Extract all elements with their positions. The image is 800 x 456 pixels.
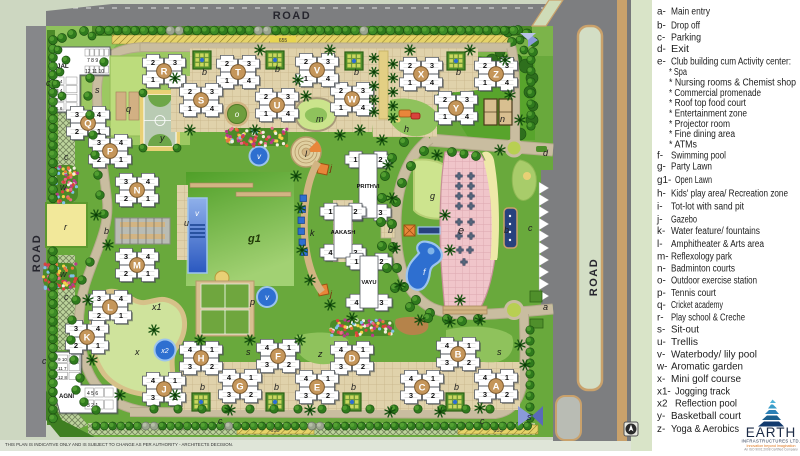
svg-text:2: 2 [97, 311, 101, 320]
svg-text:3: 3 [74, 324, 78, 333]
svg-text:T: T [235, 67, 241, 78]
svg-text:Trellis: Trellis [671, 337, 698, 348]
svg-text:3: 3 [465, 95, 469, 104]
svg-text:1: 1 [225, 76, 229, 85]
svg-text:3: 3 [304, 391, 308, 400]
svg-text:b: b [504, 225, 509, 235]
svg-text:c: c [528, 223, 533, 233]
svg-text:r-: r- [657, 312, 664, 323]
svg-text:c: c [218, 416, 223, 426]
svg-text:c: c [46, 78, 51, 88]
svg-text:J: J [161, 384, 166, 395]
svg-text:X: X [418, 69, 425, 80]
svg-text:G: G [236, 381, 243, 392]
svg-text:2: 2 [225, 59, 229, 68]
svg-text:c: c [42, 356, 47, 366]
svg-text:Amphitheater & Arts area: Amphitheater & Arts area [671, 239, 764, 250]
svg-text:p: p [249, 297, 255, 307]
svg-text:Z: Z [493, 69, 499, 80]
svg-text:1: 1 [408, 78, 412, 87]
svg-text:F: F [275, 351, 281, 362]
svg-text:3: 3 [227, 390, 231, 399]
svg-text:1: 1 [96, 341, 100, 350]
svg-text:P: P [107, 146, 114, 157]
svg-text:An ISO 9001:2008 Certified Com: An ISO 9001:2008 Certified Company [744, 447, 798, 451]
svg-text:b: b [454, 382, 459, 392]
svg-text:1: 1 [146, 269, 150, 278]
svg-text:Waterbody/ lily pool: Waterbody/ lily pool [671, 349, 757, 360]
svg-text:1: 1 [249, 373, 253, 382]
svg-text:2: 2 [210, 362, 214, 371]
svg-text:2: 2 [339, 86, 343, 95]
svg-text:1: 1 [431, 374, 435, 383]
svg-text:w: w [60, 182, 67, 192]
svg-text:3: 3 [247, 59, 251, 68]
svg-text:2: 2 [249, 390, 253, 399]
svg-text:m-: m- [657, 252, 669, 263]
svg-text:3: 3 [188, 362, 192, 371]
svg-text:PRITHVI: PRITHVI [357, 184, 380, 190]
svg-text:1: 1 [264, 109, 268, 118]
svg-text:Main entry: Main entry [671, 7, 710, 18]
svg-text:b: b [456, 67, 461, 77]
svg-text:i-: i- [657, 201, 662, 212]
svg-text:2: 2 [467, 358, 471, 367]
svg-text:AAKASH: AAKASH [331, 230, 356, 236]
svg-text:Mini golf course: Mini golf course [671, 374, 742, 385]
svg-text:Q: Q [84, 118, 91, 129]
svg-text:Parking: Parking [671, 33, 701, 44]
svg-text:V: V [314, 65, 321, 76]
svg-text:Jogging track: Jogging track [675, 387, 730, 398]
svg-text:o: o [235, 110, 240, 119]
svg-text:Aromatic garden: Aromatic garden [671, 362, 743, 373]
svg-text:Drop off: Drop off [671, 21, 700, 32]
svg-text:Outdoor exercise station: Outdoor exercise station [671, 276, 757, 287]
svg-text:C: C [419, 382, 426, 393]
svg-text:s: s [527, 412, 532, 422]
svg-text:1: 1 [354, 257, 358, 266]
svg-text:m: m [316, 114, 324, 124]
svg-text:Club building cum Activity cen: Club building cum Activity center: [671, 57, 791, 68]
svg-text:3: 3 [97, 294, 101, 303]
svg-text:W: W [348, 94, 357, 105]
svg-text:R: R [161, 66, 168, 77]
svg-text:3: 3 [210, 87, 214, 96]
svg-text:c: c [64, 292, 69, 302]
svg-text:h-: h- [657, 188, 666, 199]
svg-text:q-: q- [657, 300, 666, 311]
svg-text:2: 2 [505, 390, 509, 399]
svg-text:x: x [134, 347, 140, 357]
svg-text:p-: p- [657, 288, 666, 299]
svg-text:1: 1 [353, 155, 357, 164]
svg-text:* Fine dining area: * Fine dining area [669, 129, 735, 140]
svg-text:3: 3 [124, 177, 128, 186]
svg-text:H: H [198, 353, 205, 364]
svg-text:b: b [202, 67, 207, 77]
svg-text:1: 1 [287, 343, 291, 352]
svg-text:o-: o- [657, 276, 666, 287]
svg-text:3: 3 [339, 362, 343, 371]
svg-text:g-: g- [657, 162, 666, 173]
svg-text:w-: w- [656, 362, 667, 373]
svg-text:3: 3 [151, 393, 155, 402]
svg-text:2: 2 [287, 360, 291, 369]
svg-text:x2: x2 [160, 348, 169, 355]
svg-text:3: 3 [445, 358, 449, 367]
svg-text:2: 2 [75, 127, 79, 136]
svg-text:L: L [107, 302, 113, 313]
svg-text:Kids' play area/ Recreation zo: Kids' play area/ Recreation zone [671, 188, 788, 199]
svg-text:N: N [134, 185, 141, 196]
svg-text:* Spa: * Spa [669, 67, 687, 78]
svg-text:f-: f- [657, 151, 663, 162]
svg-text:z-: z- [657, 424, 665, 435]
svg-text:a-: a- [657, 7, 666, 18]
svg-text:Cricket academy: Cricket academy [671, 300, 723, 311]
svg-text:s: s [95, 85, 100, 95]
svg-text:b: b [275, 64, 280, 74]
svg-text:a: a [543, 302, 548, 312]
svg-text:s-: s- [657, 325, 665, 336]
svg-text:3: 3 [379, 298, 383, 307]
svg-text:1: 1 [483, 78, 487, 87]
svg-text:c: c [64, 152, 69, 162]
svg-text:Open Lawn: Open Lawn [675, 175, 712, 186]
svg-text:3: 3 [430, 61, 434, 70]
svg-text:j-: j- [656, 214, 662, 225]
svg-text:1: 1 [119, 155, 123, 164]
svg-text:1: 1 [188, 104, 192, 113]
svg-text:1: 1 [119, 311, 123, 320]
svg-text:1: 1 [304, 74, 308, 83]
svg-text:2: 2 [264, 92, 268, 101]
svg-text:3: 3 [124, 252, 128, 261]
svg-text:2: 2 [124, 194, 128, 203]
svg-text:c: c [480, 416, 485, 426]
svg-text:v-: v- [657, 349, 665, 360]
svg-text:9 10: 9 10 [58, 357, 67, 362]
svg-text:ROAD: ROAD [588, 258, 600, 296]
svg-text:w: w [60, 269, 67, 279]
svg-text:2: 2 [188, 87, 192, 96]
svg-text:* ATMs: * ATMs [669, 140, 697, 151]
svg-text:2: 2 [304, 57, 308, 66]
svg-text:Basketball court: Basketball court [671, 411, 741, 422]
svg-text:b: b [274, 382, 279, 392]
svg-text:1: 1 [326, 374, 330, 383]
svg-text:1: 1 [146, 194, 150, 203]
svg-text:U: U [274, 100, 281, 111]
svg-text:K: K [84, 332, 91, 343]
svg-text:z: z [317, 349, 323, 359]
svg-text:ROAD: ROAD [273, 10, 311, 22]
svg-text:Badminton courts: Badminton courts [671, 264, 735, 275]
svg-text:3: 3 [378, 208, 382, 217]
svg-text:Reflection pool: Reflection pool [675, 399, 737, 410]
svg-text:q: q [126, 104, 131, 114]
svg-text:e-: e- [657, 57, 666, 68]
svg-text:A: A [493, 381, 500, 392]
svg-text:n: n [500, 114, 505, 124]
svg-text:2: 2 [124, 269, 128, 278]
svg-text:2: 2 [408, 61, 412, 70]
svg-text:AGNI: AGNI [59, 394, 74, 400]
svg-text:3: 3 [286, 92, 290, 101]
svg-text:7 8 9: 7 8 9 [87, 58, 98, 64]
svg-text:u: u [184, 218, 189, 228]
svg-text:3: 3 [97, 138, 101, 147]
svg-text:s: s [497, 347, 502, 357]
svg-text:1: 1 [467, 341, 471, 350]
svg-text:x2: x2 [657, 399, 667, 410]
svg-text:h: h [404, 124, 409, 134]
svg-text:1: 1 [151, 75, 155, 84]
svg-text:2: 2 [379, 257, 383, 266]
svg-text:Tot-lot with sand pit: Tot-lot with sand pit [671, 201, 744, 212]
svg-text:2: 2 [151, 58, 155, 67]
svg-text:Water feature/ fountains: Water feature/ fountains [671, 226, 760, 237]
svg-text:e: e [458, 225, 464, 237]
svg-text:E: E [314, 382, 320, 393]
svg-text:Party Lawn: Party Lawn [671, 162, 712, 173]
svg-text:2: 2 [483, 61, 487, 70]
svg-text:c-: c- [657, 33, 665, 44]
svg-text:x1-: x1- [657, 387, 671, 398]
svg-text:3: 3 [75, 110, 79, 119]
svg-text:Y: Y [453, 103, 460, 114]
svg-text:Swimming pool: Swimming pool [671, 151, 726, 162]
svg-text:THIS PLAN IS INDICATIVE ONLY A: THIS PLAN IS INDICATIVE ONLY AND IS SUBJ… [5, 442, 233, 447]
svg-text:D: D [349, 353, 356, 364]
svg-text:3: 3 [265, 360, 269, 369]
svg-text:g: g [430, 191, 435, 201]
svg-text:l-: l- [657, 239, 662, 250]
svg-text:Exit: Exit [671, 44, 689, 55]
svg-text:VAYU: VAYU [361, 280, 376, 286]
svg-text:y-: y- [657, 411, 665, 422]
svg-text:INFRASTRUCTURES LTD.: INFRASTRUCTURES LTD. [741, 439, 800, 444]
svg-text:3: 3 [483, 390, 487, 399]
svg-text:1: 1 [505, 373, 509, 382]
svg-text:b-: b- [657, 21, 666, 32]
svg-text:b: b [351, 382, 356, 392]
svg-text:1: 1 [361, 345, 365, 354]
svg-text:2: 2 [361, 362, 365, 371]
svg-text:1: 1 [210, 345, 214, 354]
svg-text:Play school & Creche: Play school & Creche [671, 312, 745, 323]
svg-text:d-: d- [657, 44, 666, 55]
svg-text:k-: k- [657, 226, 665, 237]
svg-text:2: 2 [353, 207, 357, 216]
svg-text:u-: u- [657, 337, 666, 348]
svg-text:11 7: 11 7 [58, 366, 67, 371]
svg-text:b: b [354, 67, 359, 77]
svg-text:2: 2 [378, 155, 382, 164]
svg-text:b: b [104, 226, 109, 236]
svg-text:s: s [246, 347, 251, 357]
svg-text:y: y [159, 133, 165, 143]
svg-text:k: k [310, 228, 315, 238]
svg-text:g1-: g1- [657, 175, 671, 186]
svg-text:b: b [200, 382, 205, 392]
svg-text:12 8: 12 8 [58, 375, 67, 380]
svg-text:3: 3 [409, 391, 413, 400]
svg-text:Sit-out: Sit-out [671, 325, 699, 336]
svg-text:x1: x1 [151, 302, 162, 312]
svg-text:2: 2 [431, 391, 435, 400]
svg-text:1: 1 [443, 112, 447, 121]
svg-text:3: 3 [173, 58, 177, 67]
svg-text:x-: x- [657, 374, 665, 385]
svg-text:2: 2 [326, 391, 330, 400]
svg-text:1: 1 [339, 103, 343, 112]
svg-text:Reflexology park: Reflexology park [671, 252, 732, 263]
svg-text:Tennis court: Tennis court [671, 288, 716, 299]
svg-text:1: 1 [328, 207, 332, 216]
svg-text:M: M [133, 260, 141, 271]
svg-text:n-: n- [657, 264, 666, 275]
svg-text:B: B [455, 349, 462, 360]
svg-text:* Roof top food court: * Roof top food court [669, 98, 746, 109]
svg-text:3: 3 [361, 86, 365, 95]
svg-text:3: 3 [326, 57, 330, 66]
svg-text:Gazebo: Gazebo [671, 214, 697, 225]
svg-text:Yoga & Aerobics: Yoga & Aerobics [671, 424, 739, 435]
svg-text:S: S [198, 95, 204, 106]
svg-text:ROAD: ROAD [31, 234, 43, 272]
svg-text:4 5 6: 4 5 6 [87, 391, 98, 397]
svg-text:g1: g1 [247, 233, 261, 245]
svg-text:1: 1 [173, 376, 177, 385]
svg-text:2: 2 [443, 95, 447, 104]
